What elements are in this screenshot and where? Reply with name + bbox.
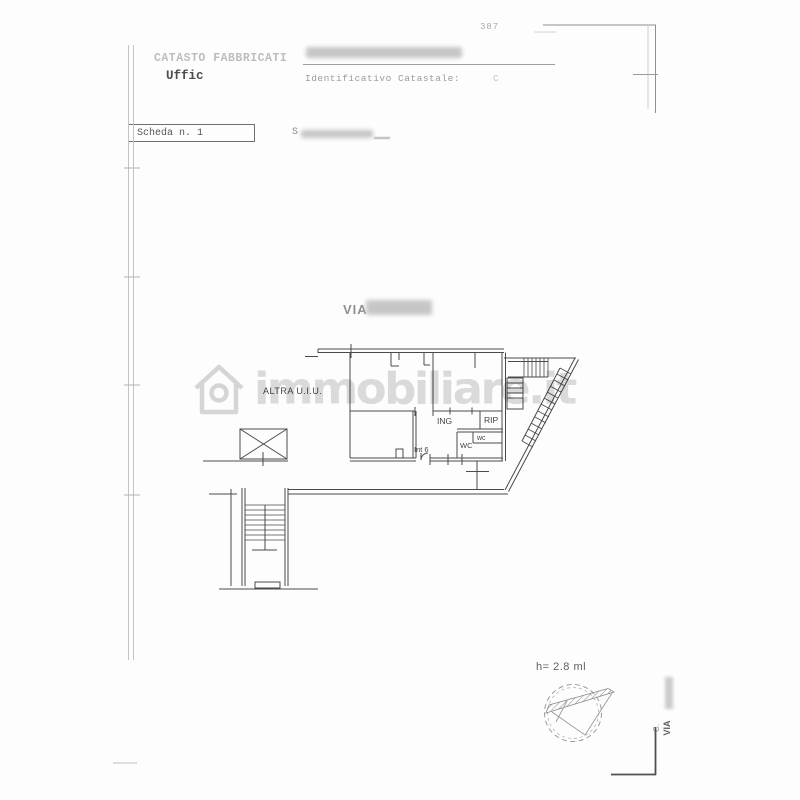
top-right-frame <box>534 25 658 113</box>
room-label-rip: RIP <box>484 415 499 425</box>
room-label-ing: ING <box>437 416 452 426</box>
floor-plan-drawing: ALTRA U.I.U. ING RIP wc WC Int 6 <box>0 0 800 800</box>
room-label-wc-small: wc <box>476 435 486 442</box>
left-margin-ruler <box>113 45 140 763</box>
cadastral-sheet-page: ALTRA U.I.U. ING RIP wc WC Int 6 387 CAT… <box>0 0 800 800</box>
compass-logo <box>545 685 615 742</box>
corridor-and-lower-stairwell <box>203 429 508 589</box>
unit-number-label: Int 6 <box>414 445 429 454</box>
room-label-wc-main: WC <box>460 441 473 450</box>
other-unit-label: ALTRA U.I.U. <box>263 386 322 396</box>
upper-stairwell <box>504 358 579 492</box>
bottom-right-frame <box>611 727 656 775</box>
unit-walls <box>305 344 506 489</box>
